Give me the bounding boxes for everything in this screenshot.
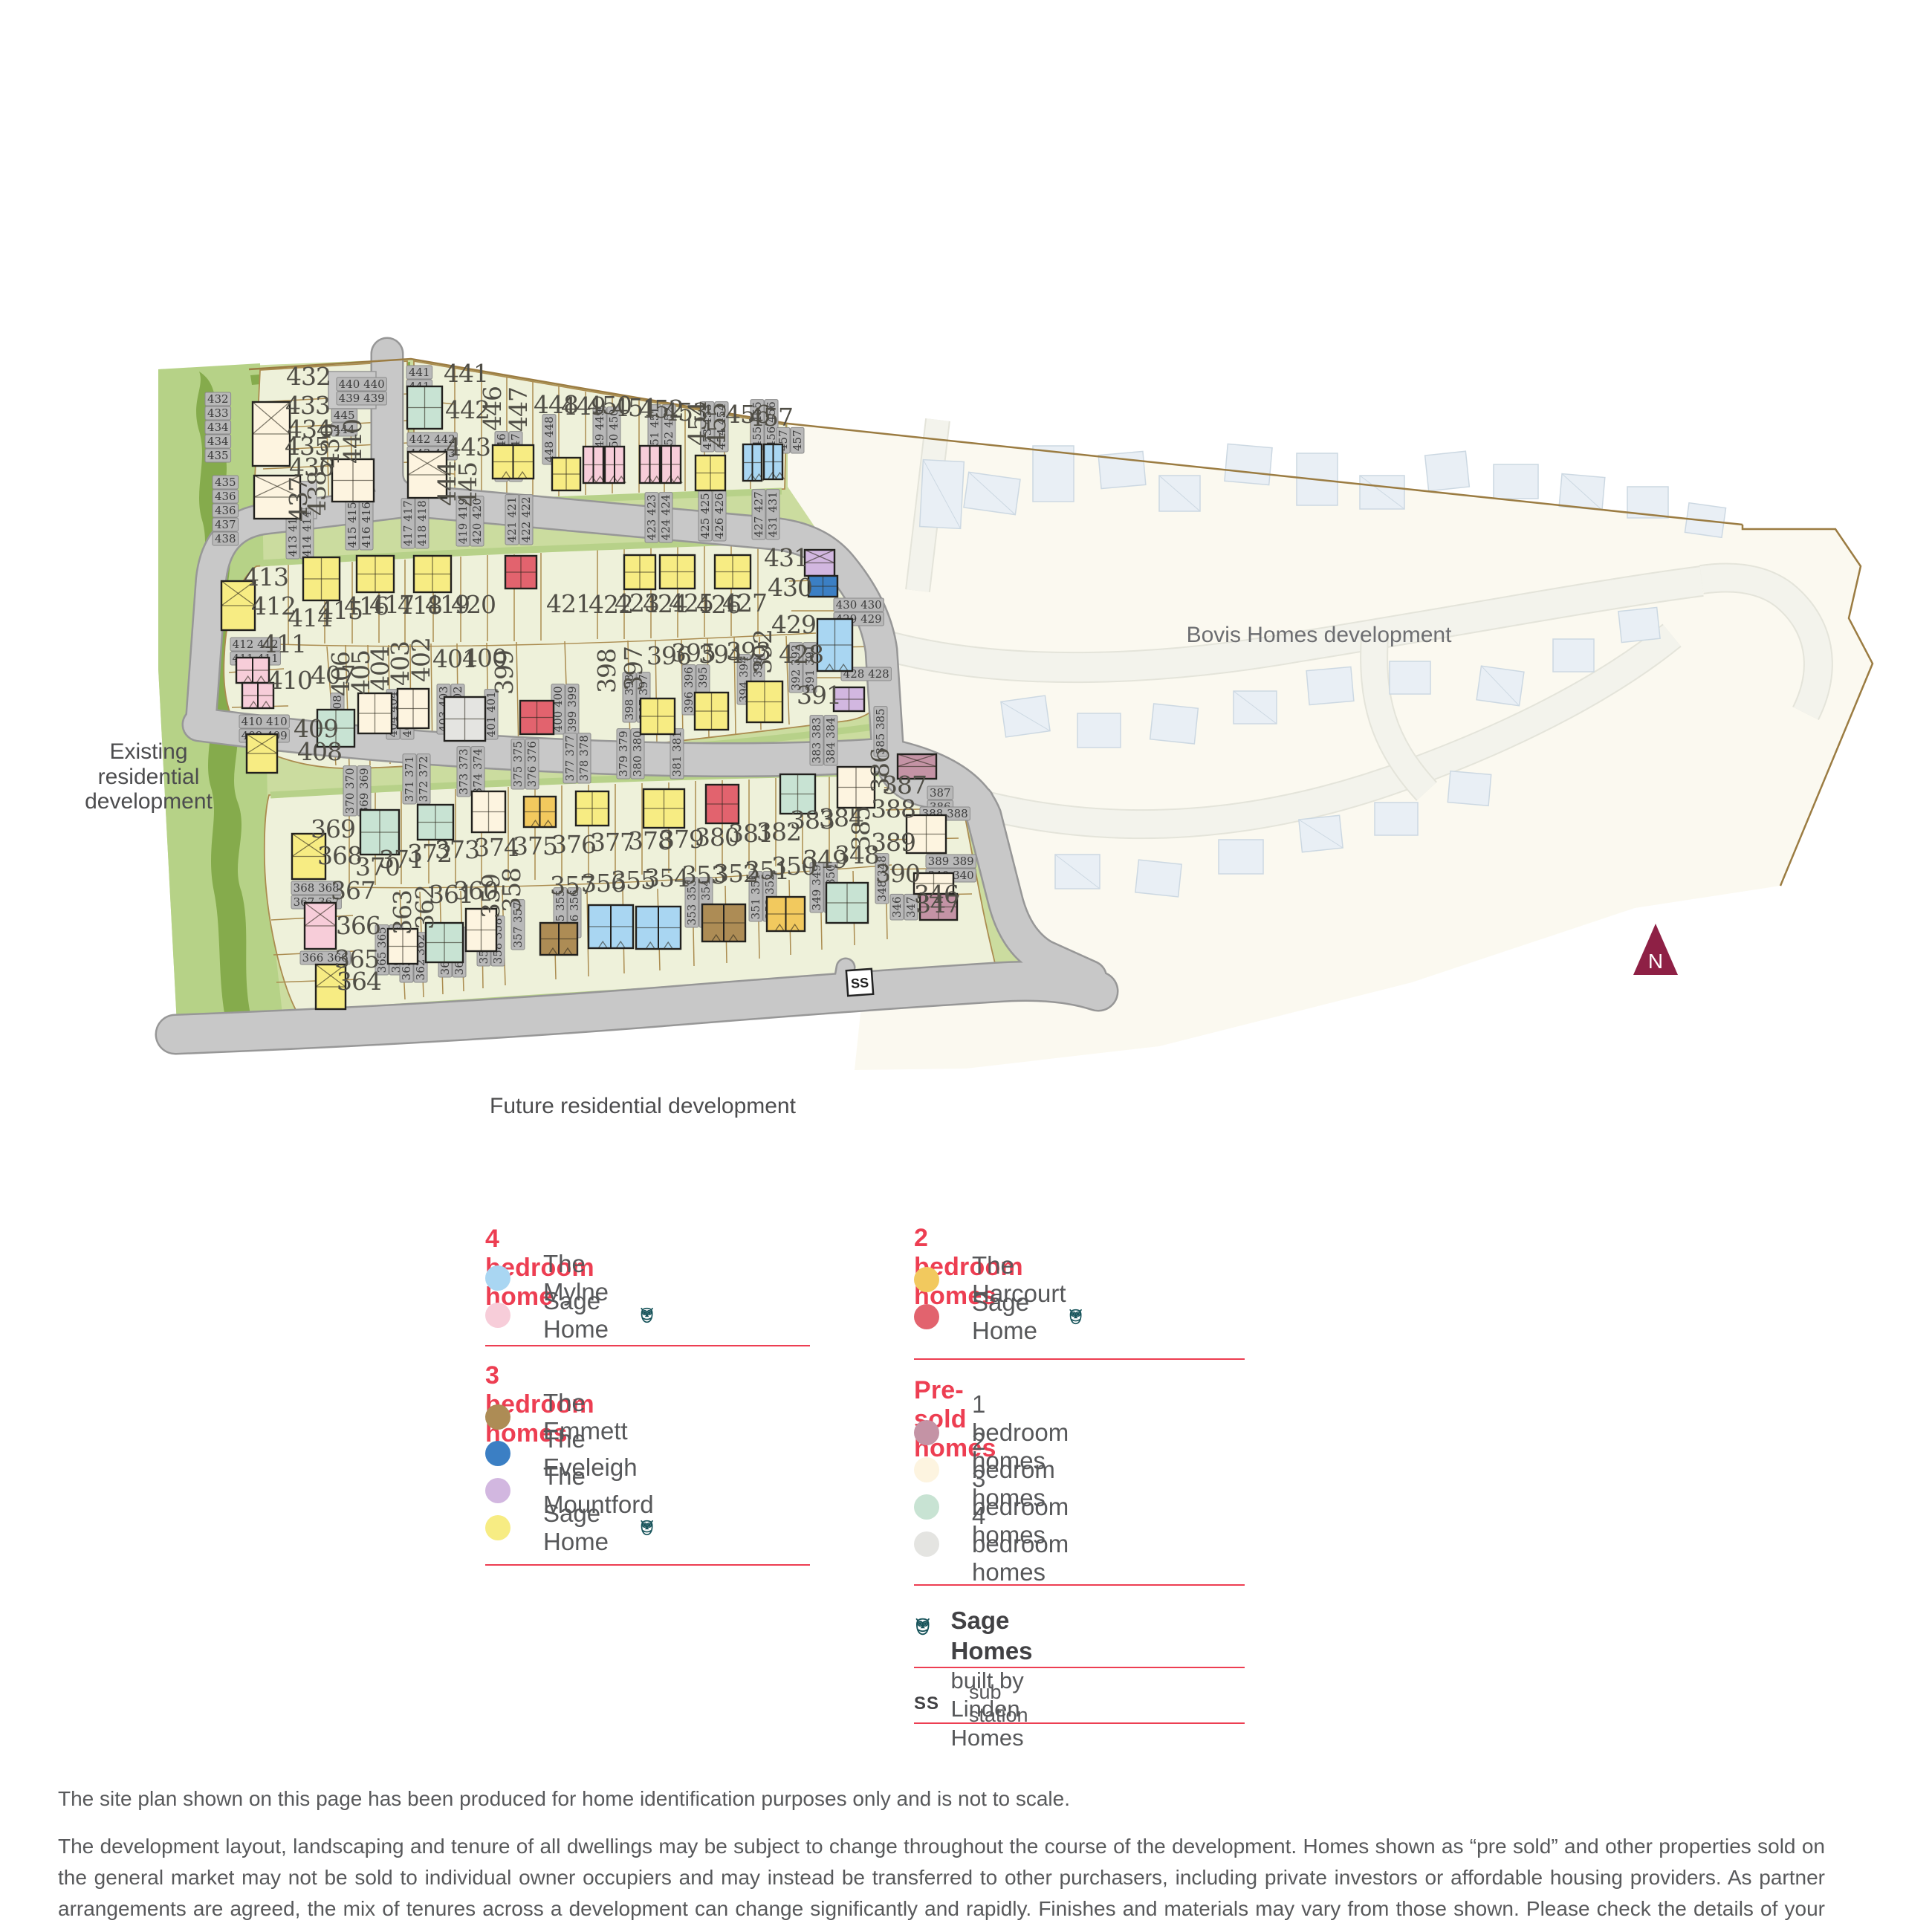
parking-tag-number: 433 — [207, 406, 229, 420]
faded-house-footprint — [1390, 661, 1430, 694]
house-sp — [236, 658, 269, 683]
parking-tag-cluster: 383 383384 384 — [810, 716, 837, 765]
house-sp — [583, 447, 605, 483]
sub-station-marker: SS — [846, 969, 873, 996]
house-sy — [493, 445, 534, 479]
parking-tag-cluster: 375 375376 376 — [511, 739, 539, 789]
house-sy — [696, 456, 725, 490]
faded-house — [1001, 696, 1050, 737]
parking-tag-number: 431 431 — [766, 491, 779, 537]
parking-tag-cluster: 371 371372 372 — [403, 754, 430, 804]
faded-house-footprint — [1135, 860, 1181, 897]
plot-label-366: 366 — [336, 911, 380, 940]
legend-swatch-mo — [485, 1478, 510, 1503]
faded-house — [1225, 444, 1272, 484]
house-p3 — [418, 805, 453, 840]
house-sp — [305, 903, 336, 949]
parking-tag-number: 385 385 — [874, 708, 887, 754]
plot-label-427: 427 — [722, 589, 767, 617]
north-arrow: N — [1633, 924, 1678, 975]
faded-house-footprint — [1425, 451, 1470, 490]
parking-tag-number: 440 440 — [339, 377, 385, 391]
faded-house — [1375, 803, 1418, 835]
legend-item-label: Sage Home — [543, 1287, 620, 1343]
parking-tag-number: 430 430 — [836, 598, 882, 612]
parking-tag-number: 380 380 — [631, 730, 644, 777]
plot-label-421: 421 — [546, 589, 591, 618]
parking-tag-number: 434 — [207, 421, 229, 434]
existing-development-label-line: Existing — [37, 739, 260, 765]
parking-tag-cluster: 440 440439 439 — [337, 377, 386, 405]
site-plan-map: 432433434434435435436436437438440 440439… — [0, 0, 1932, 1159]
faded-house — [1425, 451, 1470, 490]
faded-house-footprint — [1033, 446, 1074, 502]
parking-tag-cluster: 400 400399 399 — [551, 684, 579, 734]
legend-item-label: Sage Home — [543, 1500, 620, 1556]
sage-homes-brand: Sage Homesbuilt by Linden Homes — [914, 1605, 1054, 1753]
plot-label-375: 375 — [513, 832, 557, 860]
plot-label-447: 447 — [504, 387, 533, 432]
site-plan-svg: 432433434434435435436436437438440 440439… — [0, 0, 1932, 1159]
parking-tag-number: 389 389 — [928, 855, 974, 868]
plot-label-445: 445 — [453, 462, 482, 507]
parking-tag-cluster: 377 377378 378 — [563, 733, 591, 783]
faded-house — [964, 472, 1020, 514]
faded-house — [1150, 704, 1199, 744]
parking-tag-number: 374 374 — [471, 748, 484, 794]
parking-tag-number: 383 383 — [810, 717, 823, 763]
parking-tag-number: 435 — [215, 476, 236, 489]
house-sr — [520, 701, 554, 734]
legend-item-label: Sage Home — [972, 1288, 1048, 1345]
parking-tag-number: 410 410 — [241, 715, 288, 728]
house-sp — [605, 447, 626, 483]
parking-tag-cluster: 415 415416 416 — [346, 500, 373, 550]
faded-house-footprint — [1306, 667, 1354, 704]
brand-name: Sage Homes — [950, 1605, 1054, 1667]
legend-item: Sage Home — [485, 1513, 655, 1543]
plot-label-376: 376 — [551, 830, 596, 859]
house-ha — [524, 797, 556, 827]
parking-tag-number: 346 — [890, 896, 904, 918]
parking-tag-cluster: 423 423424 424 — [645, 493, 672, 542]
plot-label-446: 446 — [478, 386, 507, 431]
parking-tag-number: 436 — [215, 504, 236, 517]
plot-label-428: 428 — [779, 640, 823, 669]
parking-tag-number: 381 381 — [670, 730, 684, 777]
plot-label-440: 440 — [338, 419, 367, 464]
plot-label-429: 429 — [771, 610, 816, 639]
parking-tag-number: 427 427 — [752, 491, 765, 537]
legend-divider — [485, 1564, 810, 1566]
parking-tag-number: 399 399 — [565, 686, 579, 732]
plot-label-438: 438 — [302, 471, 331, 516]
plot-label-457: 457 — [748, 403, 793, 432]
plot-label-373: 373 — [435, 835, 479, 864]
plot-label-347: 347 — [915, 889, 960, 918]
plot-label-397: 397 — [619, 646, 648, 691]
house-em — [540, 923, 577, 955]
parking-tag-number: 417 417 — [401, 500, 415, 546]
plot-label-364: 364 — [337, 967, 381, 996]
parking-tag-cluster: 425 425426 426 — [698, 491, 726, 541]
house-sy — [576, 791, 609, 826]
faded-house — [1159, 476, 1200, 511]
parking-tag-number: 416 416 — [360, 502, 373, 548]
faded-house — [1299, 815, 1343, 852]
legend-swatch-ev — [485, 1441, 510, 1466]
legend-swatch-p3 — [914, 1494, 939, 1520]
parking-tag-number: 370 370 — [343, 768, 357, 814]
parking-tag-cluster: 435436436437438 — [213, 476, 239, 545]
parking-tag-number: 422 422 — [519, 496, 533, 542]
faded-house — [1553, 639, 1594, 672]
house-sy — [641, 698, 675, 734]
faded-house-footprint — [1494, 464, 1538, 499]
parking-tag-number: 424 424 — [659, 494, 672, 540]
faded-house-footprint — [1077, 713, 1121, 748]
parking-tag-number: 378 378 — [577, 735, 591, 781]
sub-station-legend-row: SSsub station — [914, 1681, 1028, 1727]
parking-tag-number: 373 373 — [457, 748, 470, 794]
existing-development-label: Existingresidentialdevelopment — [37, 739, 260, 814]
sage-owl-icon — [639, 1513, 655, 1543]
sub-station-abbr: SS — [914, 1693, 939, 1714]
house-em — [702, 904, 745, 941]
parking-tag-cluster: 381 381 — [670, 729, 684, 779]
legend-divider — [914, 1358, 1245, 1360]
legend-swatch-em — [485, 1404, 510, 1430]
house-p3 — [407, 386, 442, 429]
existing-development-label-line: development — [37, 789, 260, 814]
parking-tag-cluster: 432433434434435 — [205, 392, 231, 462]
plot-label-402: 402 — [406, 638, 435, 682]
parking-tag-cluster: 379 379380 380 — [617, 729, 644, 779]
parking-tag-number: 439 439 — [339, 392, 385, 405]
parking-tag-number: 379 379 — [617, 730, 630, 777]
house-sy — [644, 789, 684, 828]
sage-owl-icon — [639, 1300, 655, 1330]
parking-tag-number: 425 425 — [698, 493, 712, 539]
legend-divider — [914, 1584, 1245, 1586]
faded-house — [1234, 691, 1277, 724]
parking-tag-number: 377 377 — [563, 735, 577, 781]
parking-tag-cluster: 427 427431 431 — [752, 490, 779, 539]
faded-house-footprint — [1219, 840, 1263, 874]
legend-swatch-p1 — [914, 1420, 939, 1445]
legend-swatch-sr — [914, 1304, 939, 1329]
faded-house — [1390, 661, 1430, 694]
sub-station-label: sub station — [969, 1681, 1028, 1727]
house-sp — [661, 446, 682, 483]
faded-house — [1476, 666, 1524, 706]
parking-tag-number: 421 421 — [505, 496, 519, 542]
faded-house — [1448, 771, 1491, 806]
parking-tag-number: 436 — [215, 490, 236, 503]
legend-item: Sage Home — [914, 1302, 1083, 1332]
sage-owl-icon — [1068, 1302, 1083, 1332]
faded-house-footprint — [1375, 803, 1418, 835]
parking-tag-number: 376 376 — [525, 741, 539, 787]
plot-label-410: 410 — [268, 666, 312, 695]
house-my — [743, 444, 764, 481]
parking-tag-number: 375 375 — [511, 741, 525, 787]
parking-tag-number: 441 — [409, 366, 430, 379]
faded-house — [1360, 476, 1404, 509]
parking-tag-number: 415 415 — [346, 502, 359, 548]
faded-house — [1033, 446, 1074, 502]
house-p4 — [444, 697, 485, 741]
north-arrow-letter: N — [1648, 950, 1663, 973]
plot-label-430: 430 — [768, 573, 812, 602]
plot-label-398: 398 — [592, 649, 621, 693]
faded-house-footprint — [1618, 607, 1660, 642]
parking-tag-cluster: 421 421422 422 — [505, 495, 533, 545]
faded-house — [1559, 474, 1605, 510]
plot-label-441: 441 — [444, 359, 488, 388]
faded-house-footprint — [1448, 771, 1491, 806]
legend-item-label: 4 bedroom homes — [972, 1502, 1069, 1586]
house-sr — [706, 785, 739, 823]
parking-tag-number: 418 418 — [415, 500, 429, 546]
faded-house-footprint — [1150, 704, 1199, 744]
faded-house — [1618, 607, 1660, 642]
parking-tag-number: 435 — [207, 449, 229, 462]
house-mo — [805, 550, 834, 576]
house-p2 — [358, 693, 392, 733]
plot-label-413: 413 — [244, 563, 288, 591]
parking-tag-number: 434 — [207, 435, 229, 448]
house-ev — [808, 576, 837, 597]
house-sy — [552, 458, 580, 490]
house-my — [589, 905, 633, 948]
parking-tag-number: 401 401 — [484, 691, 498, 737]
plot-label-420: 420 — [451, 590, 496, 619]
existing-development-label-line: residential — [37, 765, 260, 790]
parking-tag-number: 448 448 — [542, 416, 556, 462]
site-plan-page: 432433434434435435436436437438440 440439… — [0, 0, 1932, 1932]
parking-tag-number: 371 371 — [403, 756, 416, 802]
house-sy — [357, 556, 394, 592]
house-sy — [660, 555, 695, 589]
house-sy — [414, 556, 451, 592]
legend-swatch-p4 — [914, 1531, 939, 1557]
parking-tag-number: 369 369 — [357, 768, 371, 814]
plot-label-374: 374 — [474, 833, 519, 862]
faded-house — [1306, 667, 1354, 704]
faded-house — [920, 460, 965, 529]
sub-station-text: SS — [850, 975, 869, 991]
parking-tag-number: 438 — [215, 532, 236, 545]
bovis-development-label: Bovis Homes development — [1187, 623, 1452, 648]
parking-tag-number: 423 423 — [645, 494, 658, 540]
sage-owl-icon — [914, 1605, 931, 1648]
house-ha — [767, 897, 805, 931]
plot-label-392: 392 — [748, 629, 777, 674]
parking-tag-number: 457 — [791, 429, 804, 451]
faded-house — [1135, 860, 1181, 897]
legend-item: 4 bedroom homes — [914, 1529, 1069, 1559]
future-development-label: Future residential development — [490, 1094, 796, 1119]
house-my — [636, 907, 681, 949]
parking-tag-cluster: 417 417418 418 — [401, 499, 429, 548]
road — [840, 967, 846, 1002]
house-sy — [303, 557, 340, 600]
parking-tag-number: 396 396 — [682, 667, 696, 713]
house-p3 — [826, 883, 868, 923]
house-sp — [640, 446, 661, 483]
parking-tag-number: 426 426 — [713, 493, 726, 539]
house-sy — [624, 555, 655, 589]
disclaimer-paragraph: The development layout, landscaping and … — [58, 1831, 1825, 1932]
plot-label-431: 431 — [764, 543, 808, 572]
house-p2 — [472, 791, 505, 832]
disclaimer: The site plan shown on this page has bee… — [58, 1783, 1825, 1932]
plot-label-390: 390 — [875, 859, 920, 888]
house-p2 — [398, 689, 429, 728]
house-sy — [747, 681, 782, 722]
legend-swatch-ha — [914, 1267, 939, 1292]
house-my — [764, 444, 785, 479]
plot-label-399: 399 — [490, 650, 519, 695]
plot-label-412: 412 — [251, 591, 296, 620]
faded-house — [1055, 855, 1100, 889]
parking-tag-cluster: 401 401 — [484, 690, 498, 739]
legend-swatch-p2 — [914, 1457, 939, 1482]
house-sy — [715, 555, 751, 589]
parking-tag-cluster: 370 370369 369 — [343, 766, 371, 816]
plot-label-391: 391 — [797, 681, 841, 710]
plot-label-432: 432 — [286, 362, 331, 391]
faded-house — [1494, 464, 1538, 499]
parking-tag-cluster: 373 373374 374 — [457, 747, 484, 797]
faded-house — [1077, 713, 1121, 748]
plot-label-358: 358 — [497, 868, 526, 912]
faded-house — [1219, 840, 1263, 874]
house-sr — [505, 556, 537, 589]
faded-house-footprint — [1553, 639, 1594, 672]
disclaimer-line-1: The site plan shown on this page has bee… — [58, 1783, 1825, 1815]
legend-divider — [485, 1345, 810, 1346]
faded-house-footprint — [1225, 444, 1272, 484]
parking-tag-number: 372 372 — [417, 756, 430, 802]
parking-tag-number: 384 384 — [824, 717, 837, 763]
house-sy — [695, 693, 728, 730]
plot-label-369: 369 — [311, 814, 355, 843]
legend-swatch-sp — [485, 1303, 510, 1328]
plot-label-443: 443 — [446, 432, 490, 461]
plot-label-348: 348 — [834, 840, 879, 869]
parking-tag-number: 432 — [207, 392, 229, 406]
plot-label-411: 411 — [262, 629, 306, 658]
plot-label-367: 367 — [331, 876, 375, 905]
plot-label-388: 388 — [871, 794, 915, 823]
legend-swatch-sy — [485, 1515, 510, 1540]
parking-tag-number: 437 — [215, 518, 236, 531]
parking-tag-number: 387 — [930, 786, 951, 800]
plot-label-408: 408 — [297, 737, 342, 766]
legend-swatch-my — [485, 1265, 510, 1291]
legend-item: Sage Home — [485, 1300, 655, 1330]
